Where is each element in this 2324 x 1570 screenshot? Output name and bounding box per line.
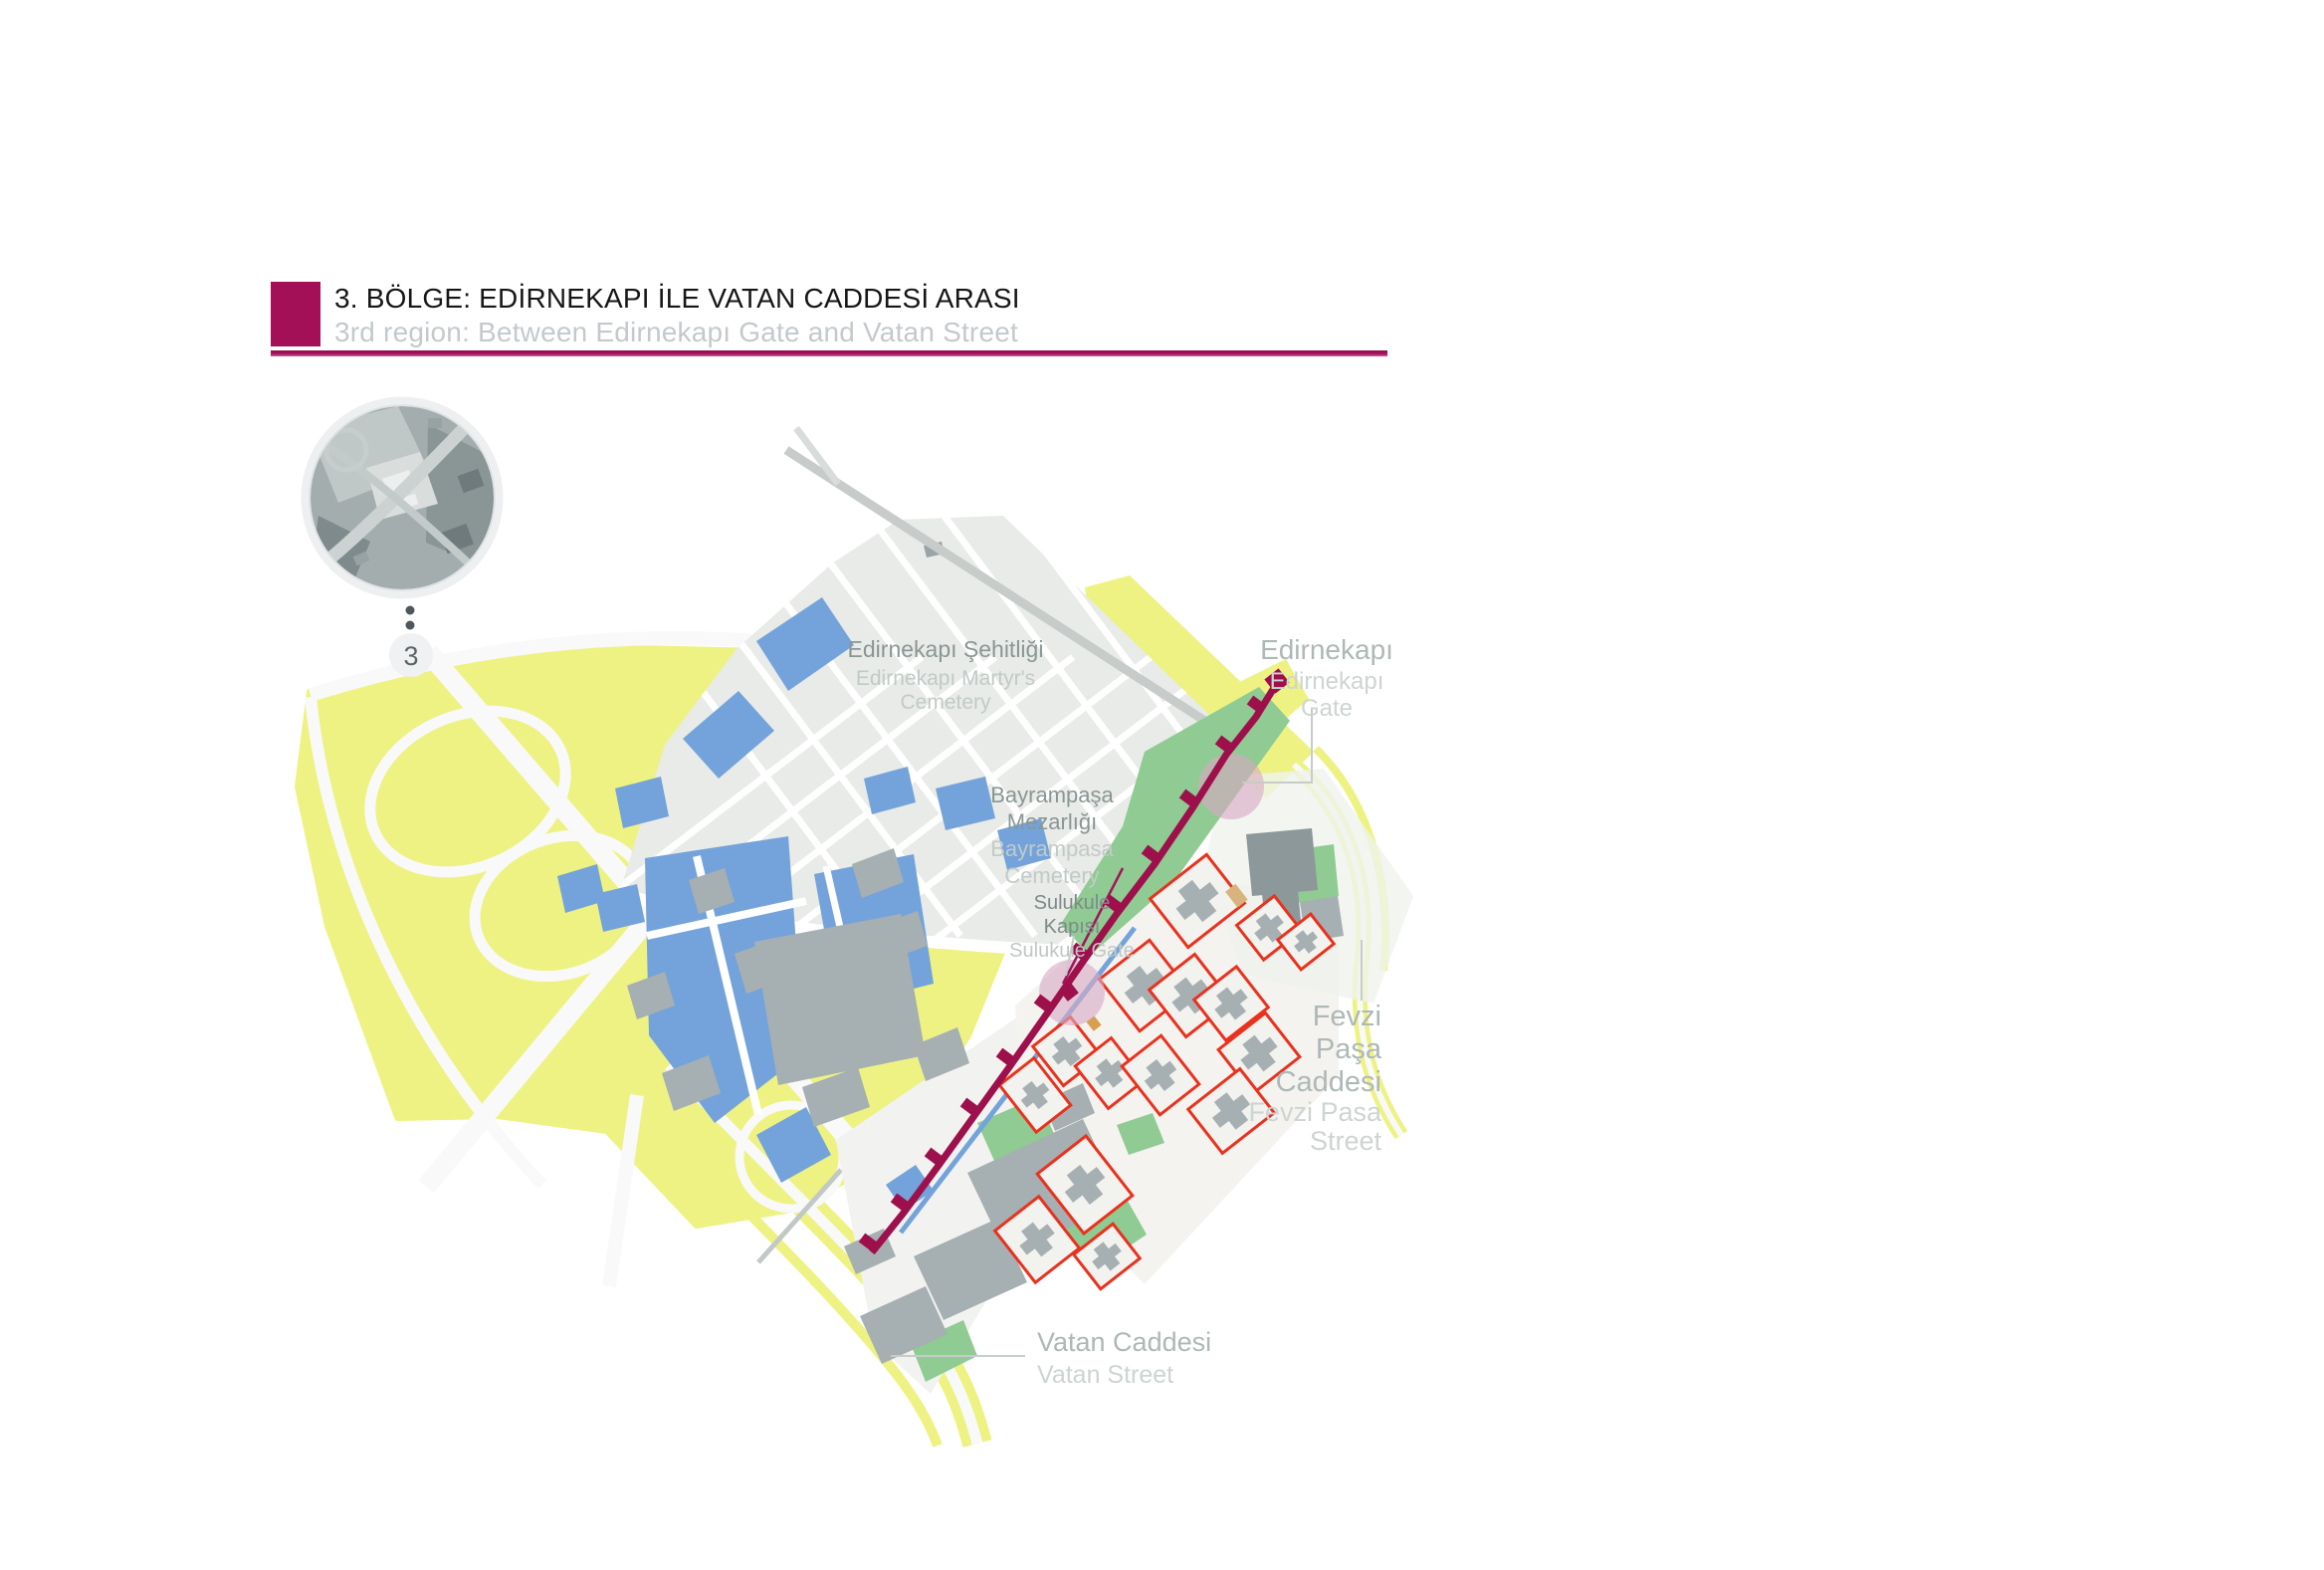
svg-text:Sulukule: Sulukule [1034,892,1111,914]
svg-text:Kapısı: Kapısı [1044,916,1101,938]
svg-text:Paşa: Paşa [1316,1033,1382,1065]
svg-text:Gate: Gate [1301,695,1353,722]
svg-text:Cemetery: Cemetery [1004,863,1099,888]
svg-text:Cemetery: Cemetery [900,691,991,714]
timeline-dots [406,606,415,630]
svg-text:Bayrampasa: Bayrampasa [990,836,1114,861]
label-vatan: Vatan Caddesi Vatan Street [1037,1327,1211,1389]
svg-text:Fevzi Pasa: Fevzi Pasa [1248,1097,1382,1127]
region-map: Edirnekapı Şehitliği Edirnekapı Martyr's… [0,0,2324,1570]
svg-text:Vatan Caddesi: Vatan Caddesi [1037,1327,1211,1357]
region-number: 3 [403,641,418,671]
satellite-thumbnail [303,398,502,597]
atlas-sheet: 3. BÖLGE: EDİRNEKAPI İLE VATAN CADDESİ A… [0,0,2324,1570]
svg-text:Edirnekapı: Edirnekapı [1260,634,1393,665]
svg-text:Vatan Street: Vatan Street [1037,1361,1173,1389]
svg-text:Edirnekapı: Edirnekapı [1270,668,1384,695]
svg-text:Edirnekapı Martyr's: Edirnekapı Martyr's [856,667,1035,690]
svg-text:Bayrampaşa: Bayrampaşa [990,783,1114,807]
svg-text:Edirnekapı Şehitliği: Edirnekapı Şehitliği [848,636,1044,662]
region-number-badge: 3 [389,633,433,677]
svg-text:Mezarlığı: Mezarlığı [1007,809,1097,834]
svg-text:Sulukule Gate: Sulukule Gate [1009,940,1135,962]
svg-text:Street: Street [1310,1126,1382,1156]
svg-text:Caddesi: Caddesi [1276,1066,1381,1098]
svg-text:Fevzi: Fevzi [1313,1001,1381,1032]
